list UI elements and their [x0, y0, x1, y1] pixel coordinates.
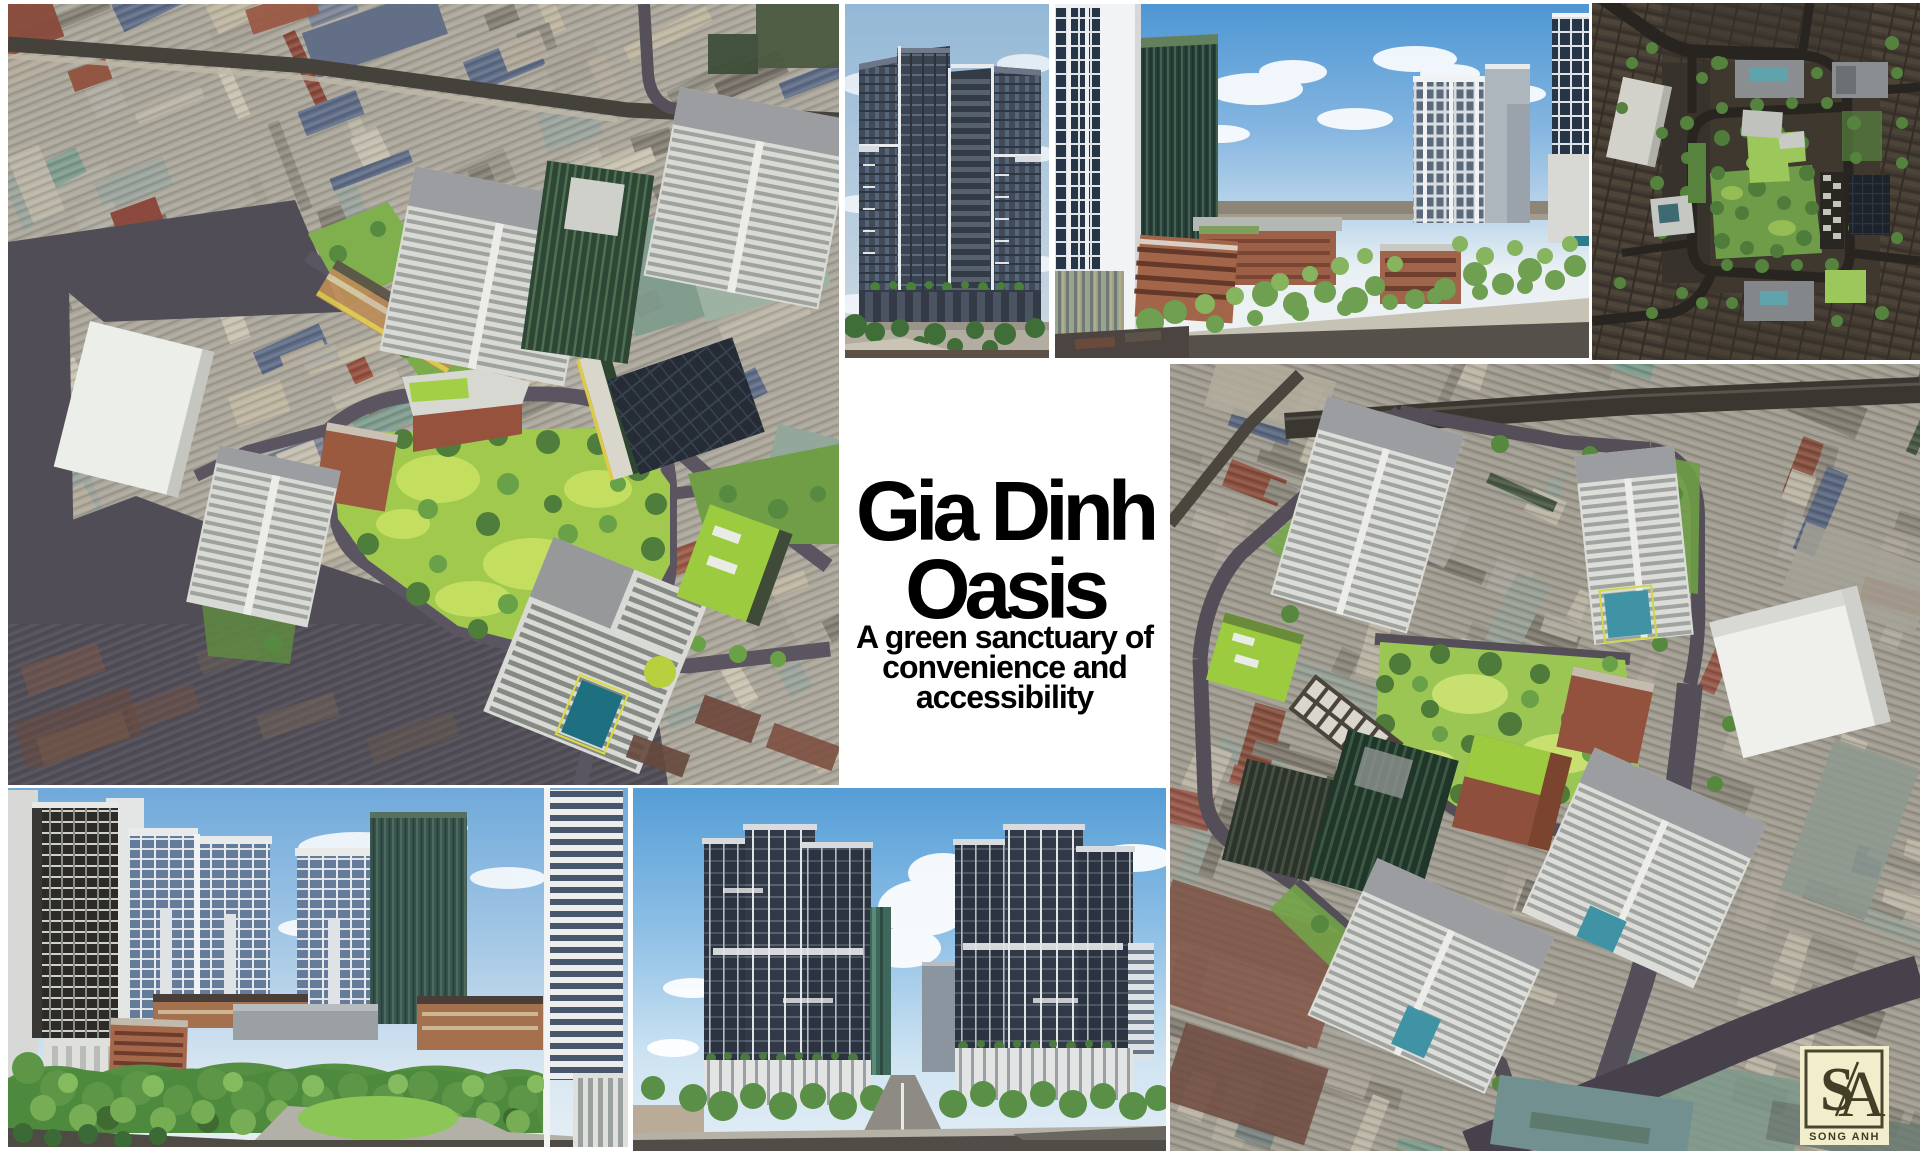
svg-text:SONG ANH: SONG ANH [1809, 1131, 1880, 1143]
